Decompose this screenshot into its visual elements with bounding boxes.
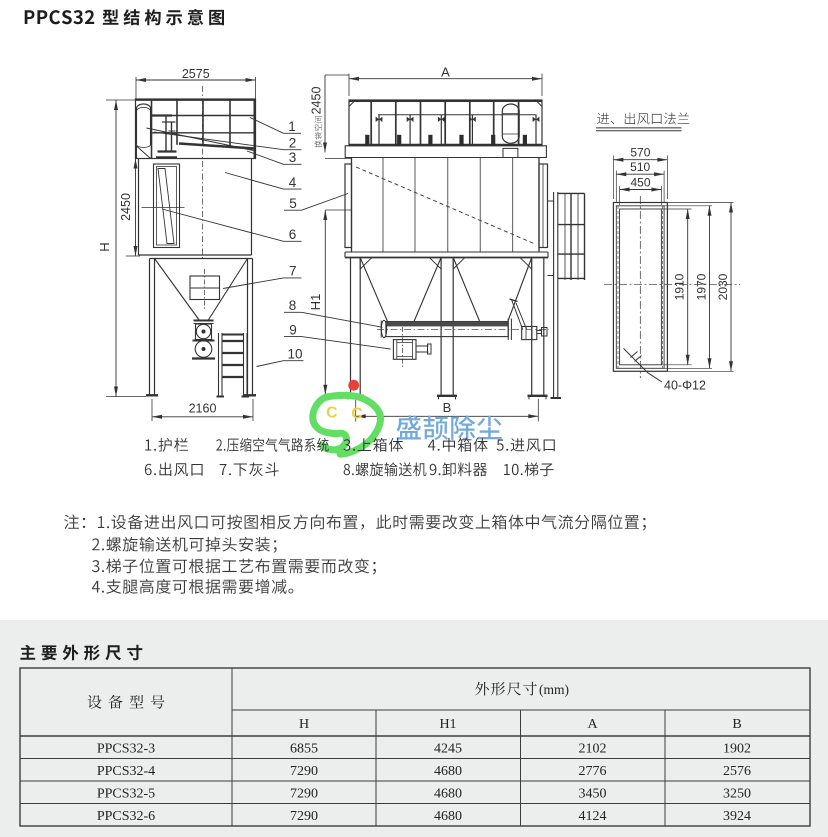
svg-text:2030: 2030 [716, 273, 730, 300]
svg-text:5: 5 [289, 196, 297, 211]
svg-text:510: 510 [630, 160, 650, 174]
svg-text:4: 4 [289, 175, 297, 190]
svg-text:8: 8 [289, 298, 297, 313]
svg-text:570: 570 [630, 146, 650, 160]
svg-text:PPCS32-5: PPCS32-5 [97, 786, 155, 801]
svg-text:3: 3 [289, 150, 297, 165]
svg-text:A: A [441, 64, 450, 79]
svg-text:PPCS32-3: PPCS32-3 [97, 741, 155, 756]
svg-text:H: H [299, 717, 309, 732]
svg-text:(mm): (mm) [539, 682, 569, 697]
svg-text:4680: 4680 [434, 786, 462, 801]
svg-text:7290: 7290 [290, 764, 318, 779]
svg-text:1910: 1910 [673, 273, 687, 300]
svg-text:4680: 4680 [434, 764, 462, 779]
svg-text:1: 1 [288, 119, 296, 134]
svg-text:1970: 1970 [694, 273, 708, 300]
svg-text:1902: 1902 [723, 741, 751, 756]
svg-text:6: 6 [289, 227, 297, 242]
svg-text:7290: 7290 [290, 809, 318, 824]
svg-text:PPCS32-6: PPCS32-6 [97, 809, 155, 824]
svg-text:A: A [587, 717, 598, 732]
svg-text:2576: 2576 [723, 764, 751, 779]
svg-text:9: 9 [289, 322, 297, 337]
svg-text:4124: 4124 [579, 809, 607, 824]
svg-text:3250: 3250 [723, 786, 751, 801]
svg-text:2575: 2575 [182, 67, 210, 81]
svg-text:C: C [351, 406, 362, 423]
svg-text:4245: 4245 [434, 741, 462, 756]
svg-text:C: C [326, 404, 337, 421]
svg-text:2450: 2450 [310, 87, 324, 115]
svg-text:4680: 4680 [434, 809, 462, 824]
svg-text:3450: 3450 [579, 786, 607, 801]
svg-text:7: 7 [289, 264, 297, 279]
svg-text:2776: 2776 [579, 764, 607, 779]
svg-text:10: 10 [287, 346, 302, 361]
svg-text:H: H [97, 242, 112, 251]
svg-text:2450: 2450 [119, 193, 133, 221]
svg-text:B: B [732, 717, 741, 732]
svg-text:6855: 6855 [290, 741, 318, 756]
svg-text:2102: 2102 [579, 741, 607, 756]
svg-text:B: B [443, 400, 452, 415]
svg-text:7290: 7290 [290, 786, 318, 801]
svg-text:2: 2 [289, 135, 297, 150]
svg-text:H1: H1 [439, 717, 456, 732]
svg-text:40-Φ12: 40-Φ12 [664, 379, 706, 393]
svg-text:H1: H1 [308, 294, 323, 311]
svg-text:3924: 3924 [723, 809, 751, 824]
svg-text:2160: 2160 [189, 401, 217, 415]
svg-text:PPCS32-4: PPCS32-4 [97, 764, 155, 779]
svg-text:450: 450 [630, 176, 650, 190]
